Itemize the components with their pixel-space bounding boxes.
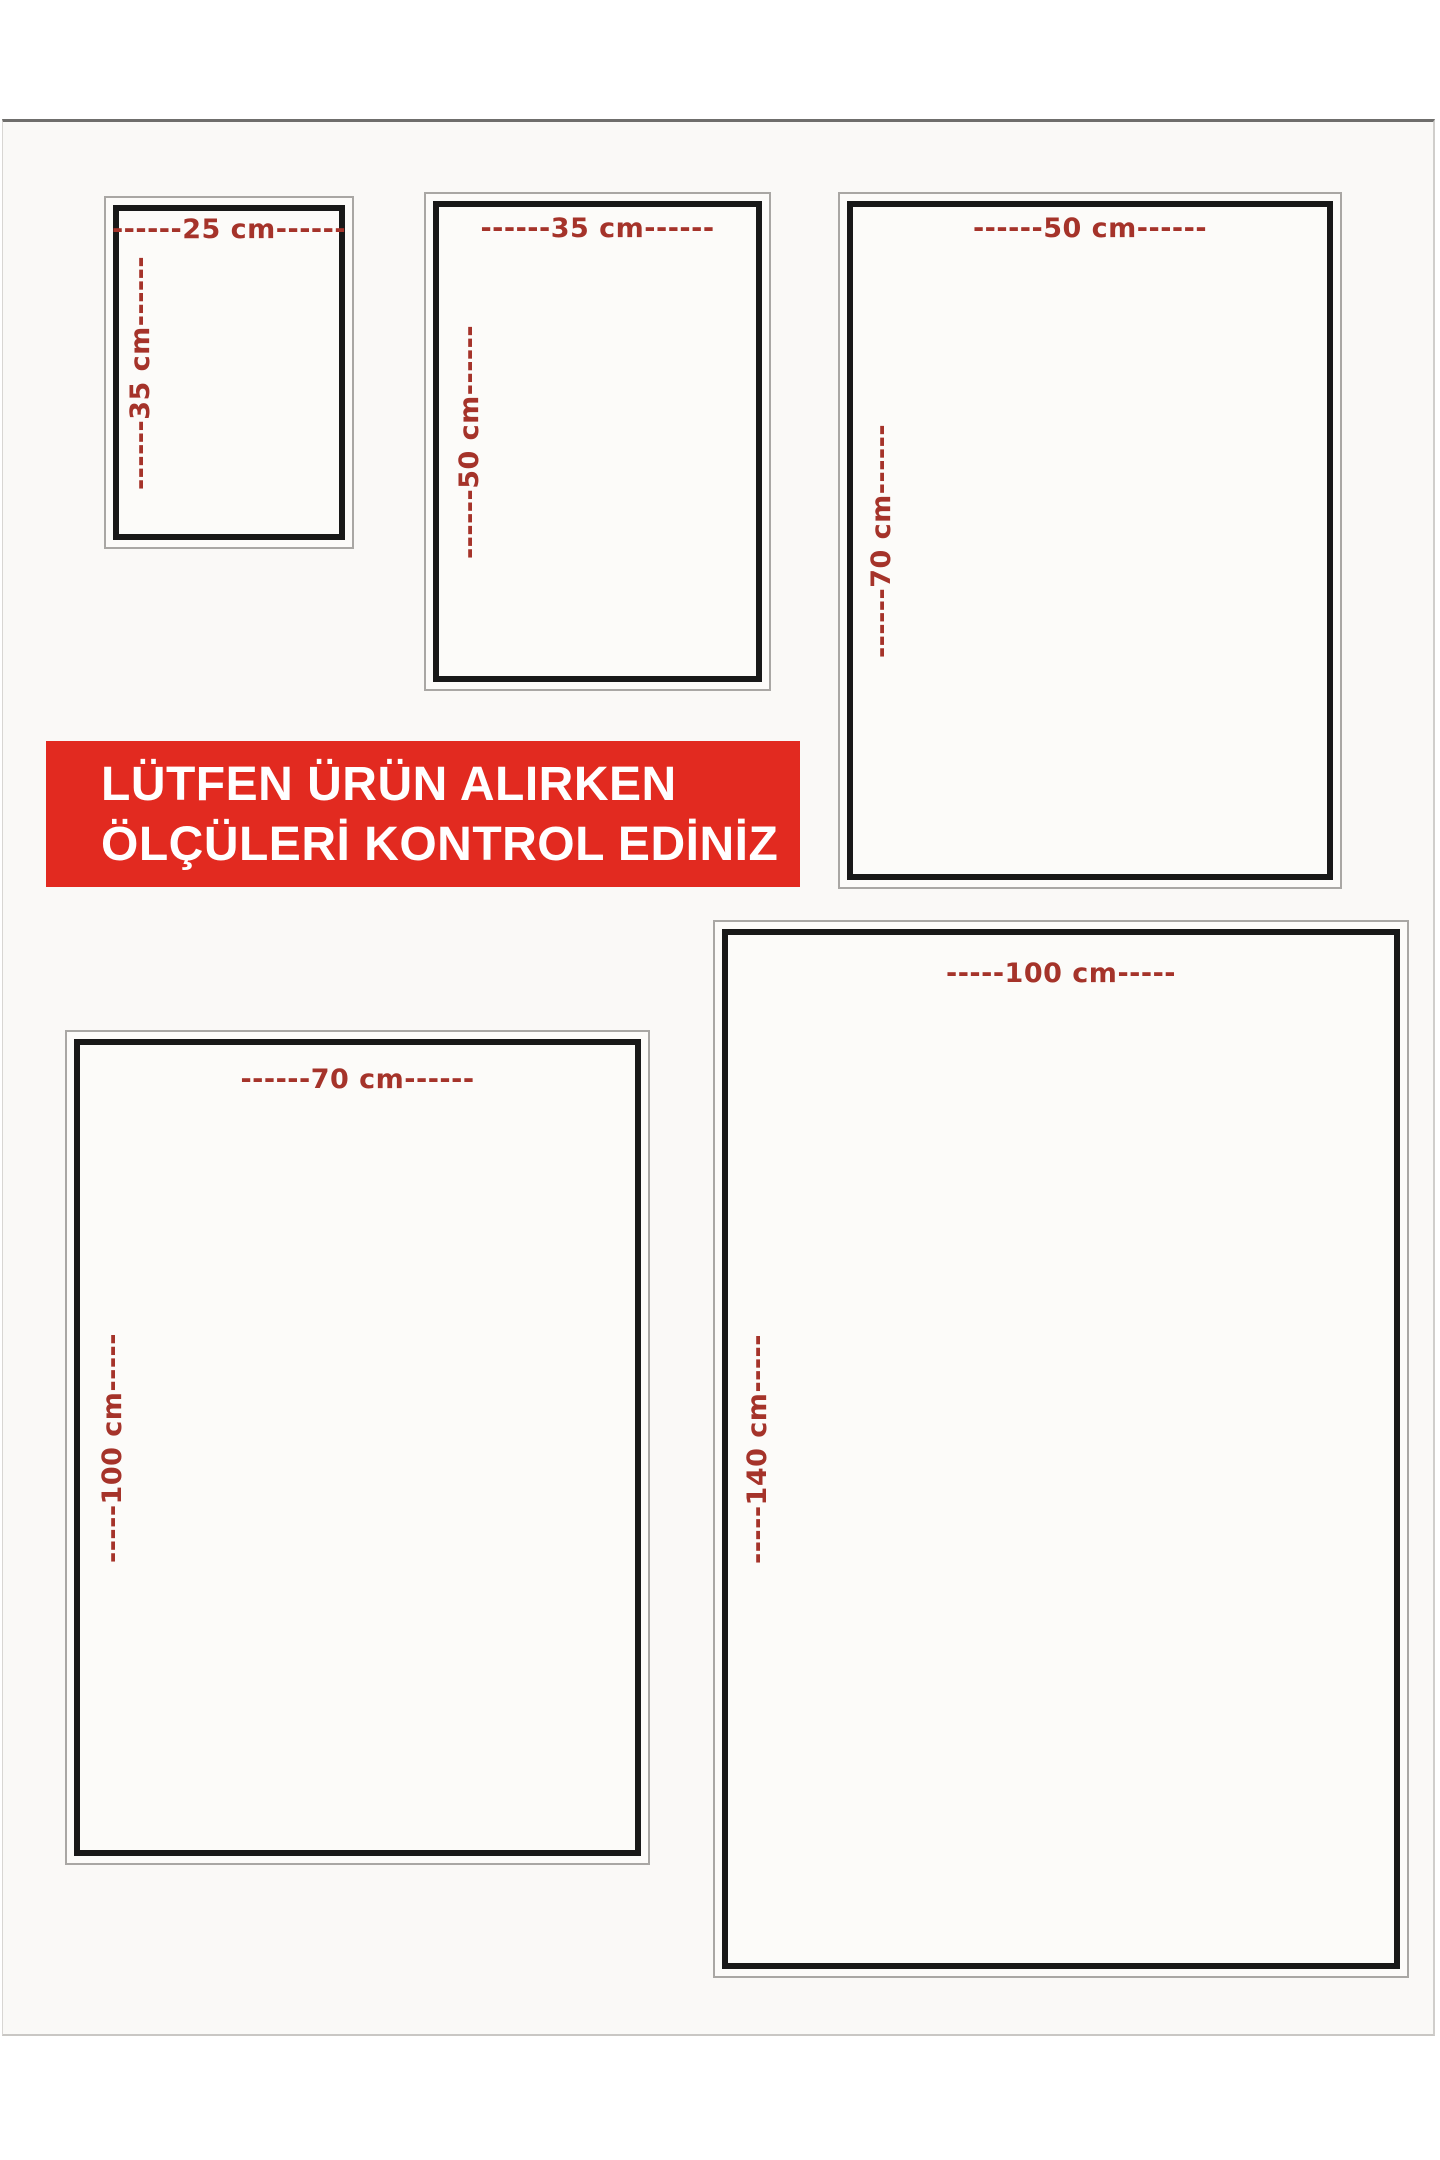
size-box-70x100-frame — [74, 1039, 641, 1856]
width-label: ------50 cm------ — [840, 213, 1340, 245]
height-label: ------35 cm------ — [125, 255, 157, 489]
size-box-35x50: ------35 cm------ ------50 cm------ — [424, 192, 771, 691]
size-box-50x70-frame — [847, 201, 1333, 880]
notice-banner: LÜTFEN ÜRÜN ALIRKEN ÖLÇÜLERİ KONTROL EDİ… — [46, 741, 800, 887]
width-label: ------25 cm------ — [106, 214, 352, 246]
width-label: ------70 cm------ — [67, 1064, 648, 1096]
height-label: -----140 cm----- — [742, 1334, 774, 1564]
notice-line-2: ÖLÇÜLERİ KONTROL EDİNİZ — [101, 815, 800, 875]
height-label: -----100 cm----- — [97, 1333, 129, 1563]
sheet: ------25 cm------ ------35 cm------ ----… — [2, 119, 1435, 2036]
size-box-100x140-frame — [722, 929, 1400, 1969]
height-label: ------50 cm------ — [454, 324, 486, 558]
size-box-50x70: ------50 cm------ ------70 cm------ — [838, 192, 1342, 889]
size-box-25x35: ------25 cm------ ------35 cm------ — [104, 196, 354, 549]
size-box-70x100: ------70 cm------ -----100 cm----- — [65, 1030, 650, 1865]
notice-line-1: LÜTFEN ÜRÜN ALIRKEN — [101, 755, 800, 815]
width-label: -----100 cm----- — [715, 958, 1407, 990]
width-label: ------35 cm------ — [426, 213, 769, 245]
height-label: ------70 cm------ — [866, 423, 898, 657]
size-box-100x140: -----100 cm----- -----140 cm----- — [713, 920, 1409, 1978]
